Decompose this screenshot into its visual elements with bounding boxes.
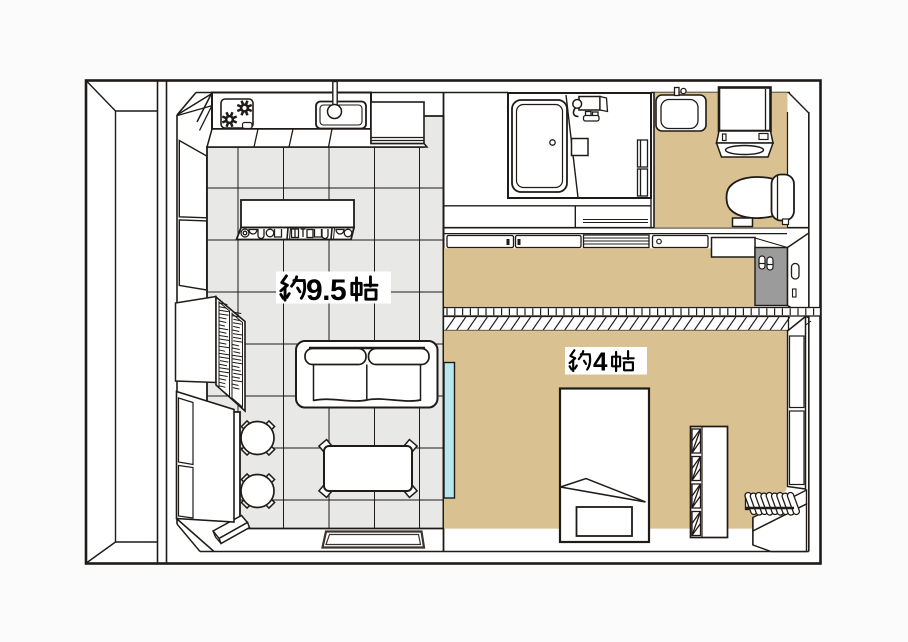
svg-text:4: 4 [593, 347, 608, 377]
svg-text:9.5: 9.5 [306, 274, 346, 307]
